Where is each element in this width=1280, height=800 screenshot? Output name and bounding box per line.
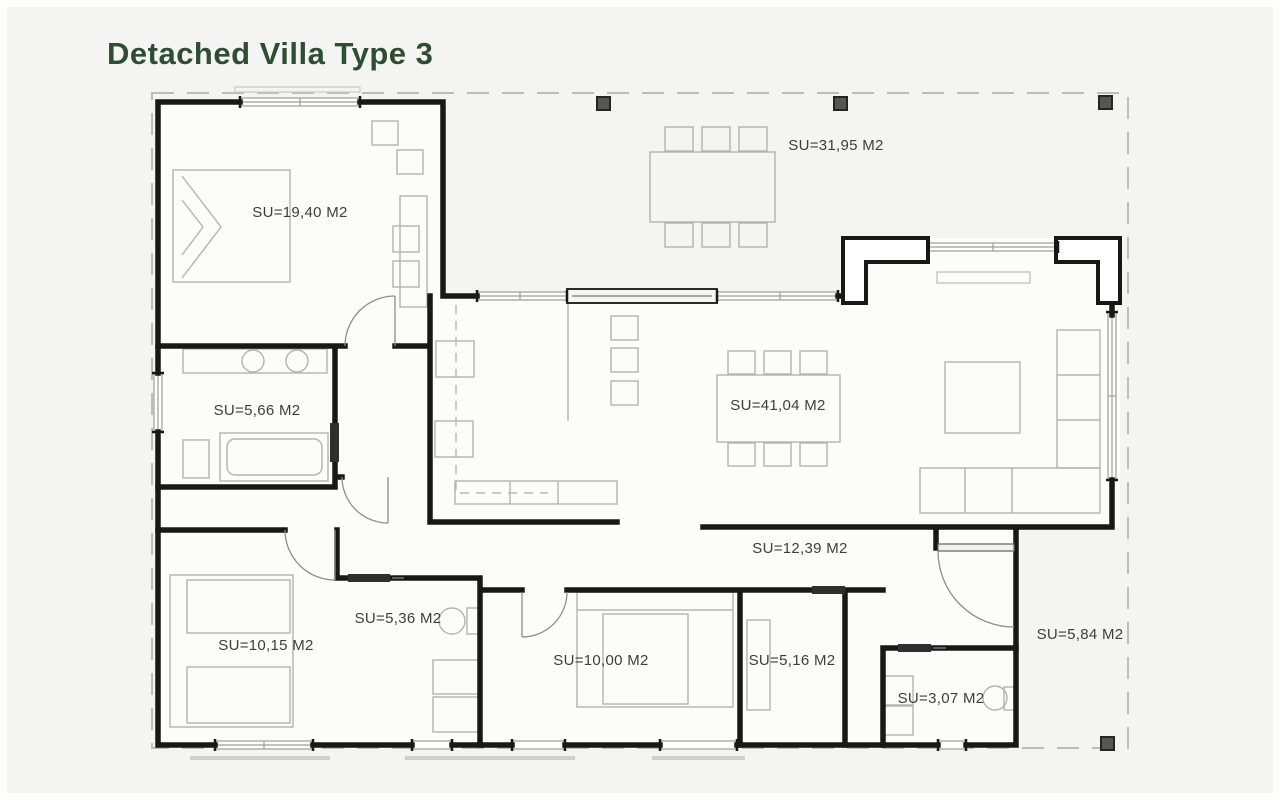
label-living-dining: SU=41,04 M2	[730, 397, 825, 414]
label-bathroom-1: SU=5,66 M2	[214, 402, 301, 419]
label-bedroom-1: SU=19,40 M2	[252, 204, 347, 221]
label-terrace: SU=31,95 M2	[788, 137, 883, 154]
column-4	[1101, 737, 1114, 750]
label-entrance-porch: SU=5,84 M2	[1037, 626, 1124, 643]
floor-plan: SU=19,40 M2 SU=31,95 M2 SU=5,66 M2 SU=41…	[0, 0, 1280, 800]
column-3	[1099, 96, 1112, 109]
label-bedroom-2: SU=10,15 M2	[218, 637, 313, 654]
page-title: Detached Villa Type 3	[107, 36, 433, 72]
label-bedroom-3: SU=10,00 M2	[553, 652, 648, 669]
label-bathroom-2: SU=5,36 M2	[355, 610, 442, 627]
label-wc: SU=3,07 M2	[898, 690, 985, 707]
label-dressing-room: SU=5,16 M2	[749, 652, 836, 669]
label-hallway: SU=12,39 M2	[752, 540, 847, 557]
terrace-table-symbol	[650, 127, 775, 247]
column-2	[834, 97, 847, 110]
column-1	[597, 97, 610, 110]
